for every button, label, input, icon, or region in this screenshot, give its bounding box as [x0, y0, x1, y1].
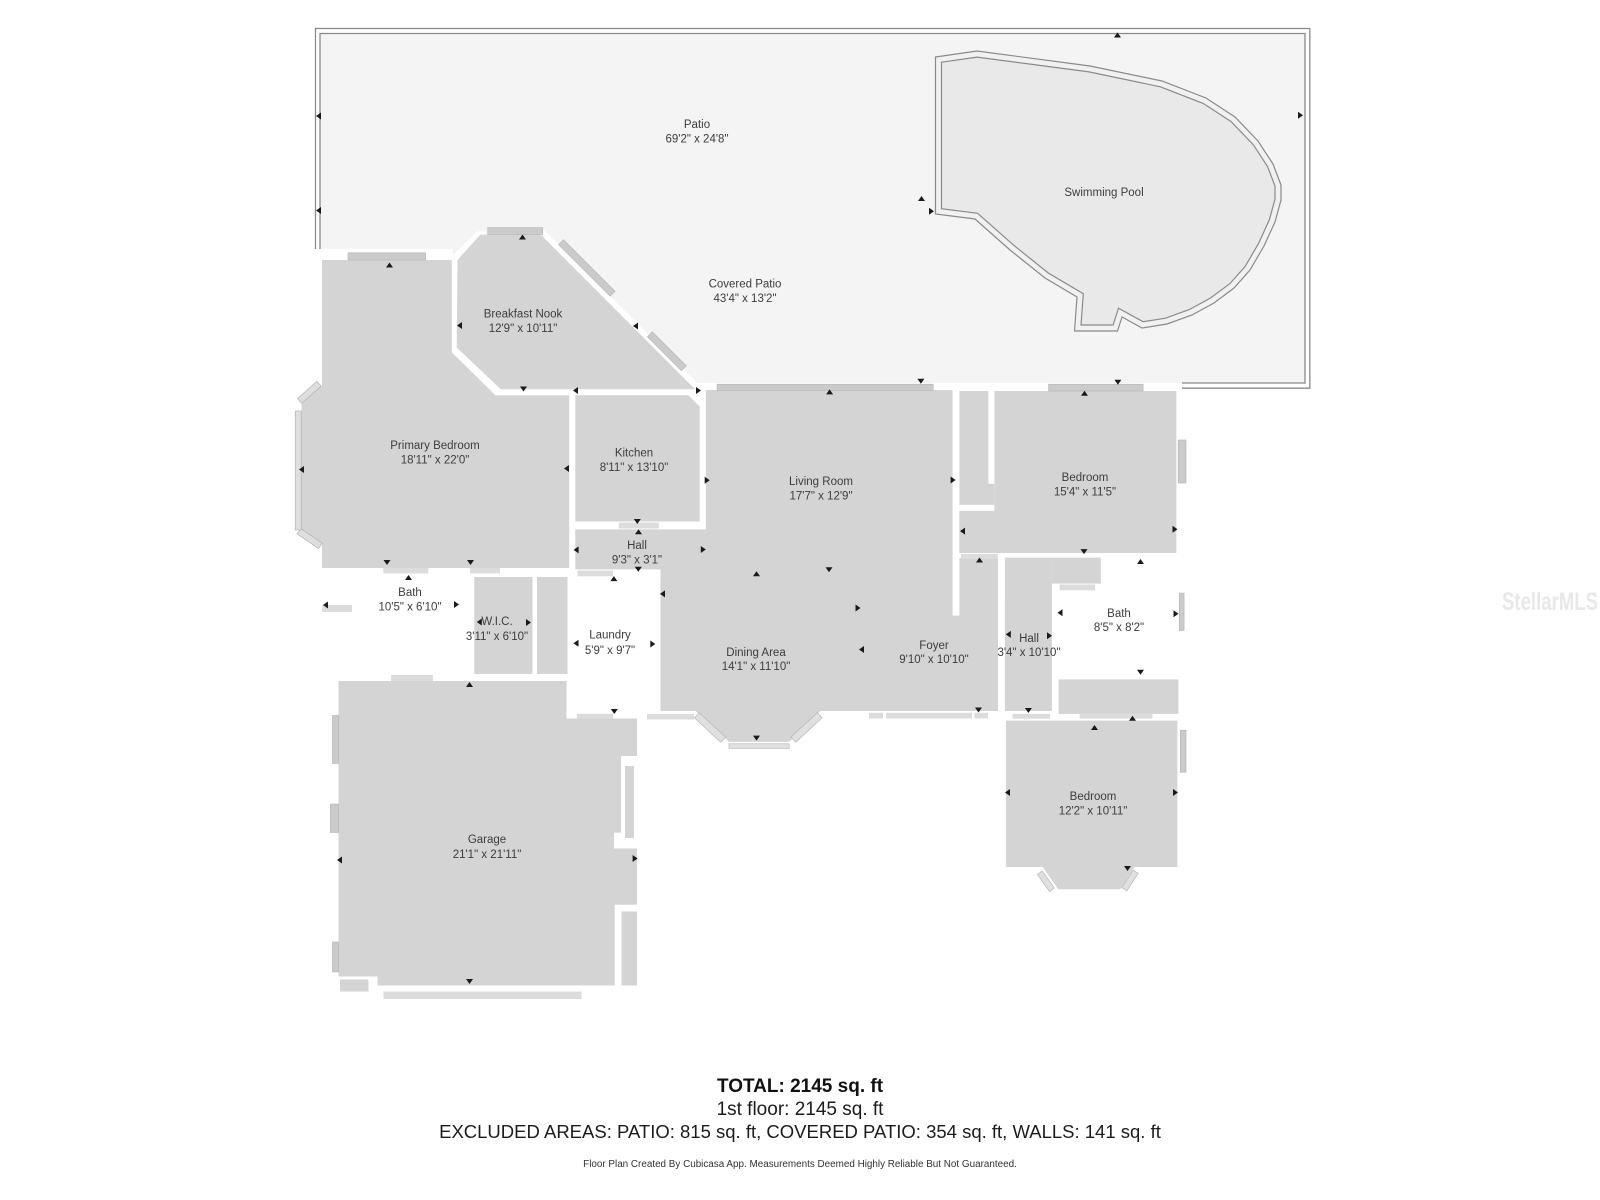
svg-text:14'1" x 11'10": 14'1" x 11'10" — [722, 661, 791, 673]
svg-text:Hall: Hall — [627, 540, 647, 552]
svg-text:Bedroom: Bedroom — [1070, 791, 1117, 803]
svg-text:Covered Patio: Covered Patio — [709, 279, 782, 291]
svg-text:StellarMLS: StellarMLS — [1502, 588, 1598, 616]
svg-text:1st floor: 2145 sq. ft: 1st floor: 2145 sq. ft — [717, 1099, 885, 1120]
svg-text:Breakfast Nook: Breakfast Nook — [484, 309, 563, 321]
svg-text:Kitchen: Kitchen — [615, 448, 653, 460]
svg-text:21'1" x 21'11": 21'1" x 21'11" — [453, 849, 522, 861]
svg-text:43'4" x 13'2": 43'4" x 13'2" — [713, 293, 776, 305]
svg-text:15'4" x 11'5": 15'4" x 11'5" — [1054, 487, 1116, 499]
svg-text:17'7" x 12'9": 17'7" x 12'9" — [789, 491, 852, 503]
svg-text:Dining Area: Dining Area — [726, 647, 786, 659]
svg-text:9'3" x 3'1": 9'3" x 3'1" — [612, 555, 662, 567]
svg-text:Patio: Patio — [684, 119, 710, 131]
svg-text:Living Room: Living Room — [789, 476, 853, 488]
svg-text:8'5" x 8'2": 8'5" x 8'2" — [1094, 622, 1144, 634]
svg-text:69'2" x 24'8": 69'2" x 24'8" — [665, 134, 728, 146]
svg-text:9'10" x 10'10": 9'10" x 10'10" — [899, 654, 968, 666]
svg-text:Floor Plan Created By Cubicasa: Floor Plan Created By Cubicasa App. Meas… — [583, 1159, 1017, 1170]
svg-text:Bedroom: Bedroom — [1062, 472, 1109, 484]
svg-text:12'2" x 10'11": 12'2" x 10'11" — [1059, 806, 1128, 818]
svg-text:Hall: Hall — [1019, 633, 1039, 645]
svg-text:Bath: Bath — [398, 587, 422, 599]
svg-text:5'9" x 9'7": 5'9" x 9'7" — [585, 645, 635, 657]
svg-text:3'4" x 10'10": 3'4" x 10'10" — [997, 647, 1060, 659]
svg-text:18'11" x 22'0": 18'11" x 22'0" — [401, 455, 470, 467]
svg-text:Laundry: Laundry — [589, 630, 631, 642]
svg-text:Garage: Garage — [468, 834, 506, 846]
svg-text:3'11" x 6'10": 3'11" x 6'10" — [466, 631, 528, 643]
svg-text:TOTAL: 2145 sq. ft: TOTAL: 2145 sq. ft — [717, 1076, 884, 1097]
svg-text:Swimming Pool: Swimming Pool — [1064, 187, 1143, 199]
svg-text:Primary Bedroom: Primary Bedroom — [390, 440, 479, 452]
svg-text:Foyer: Foyer — [919, 640, 949, 652]
svg-text:Bath: Bath — [1107, 608, 1131, 620]
svg-text:8'11" x 13'10": 8'11" x 13'10" — [600, 462, 669, 474]
svg-text:W.I.C.: W.I.C. — [481, 616, 512, 628]
svg-text:12'9" x 10'11": 12'9" x 10'11" — [489, 323, 558, 335]
svg-text:10'5" x 6'10": 10'5" x 6'10" — [378, 602, 441, 614]
svg-text:EXCLUDED AREAS: PATIO: 815 sq.: EXCLUDED AREAS: PATIO: 815 sq. ft, COVER… — [439, 1121, 1161, 1142]
